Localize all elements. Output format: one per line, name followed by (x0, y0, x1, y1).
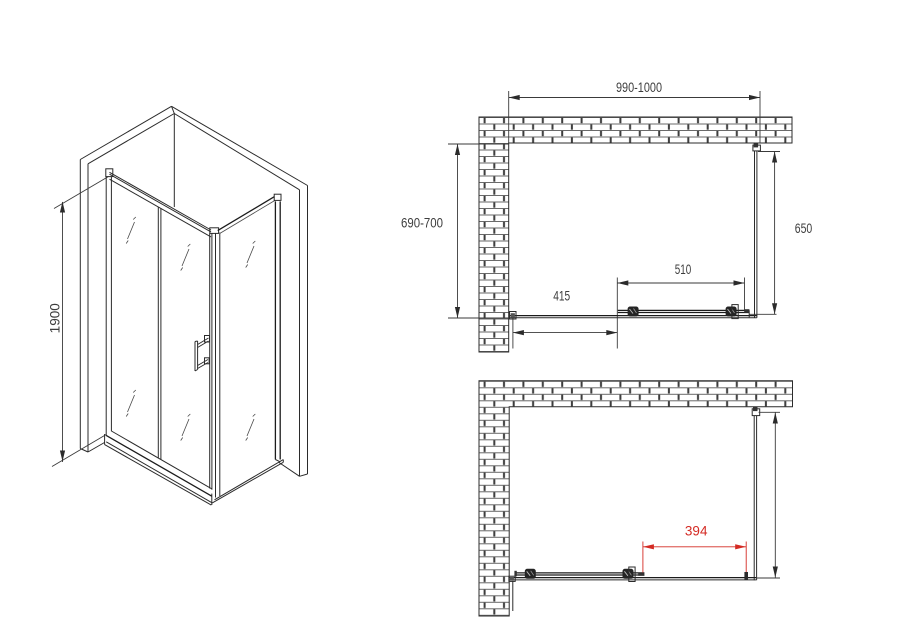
svg-text:415: 415 (553, 289, 570, 304)
svg-text:510: 510 (675, 262, 692, 277)
svg-text:690-700: 690-700 (401, 215, 443, 230)
svg-text:990-1000: 990-1000 (616, 80, 662, 95)
svg-text:394: 394 (685, 524, 708, 539)
svg-text:650: 650 (795, 221, 813, 236)
svg-text:1900: 1900 (48, 303, 63, 333)
